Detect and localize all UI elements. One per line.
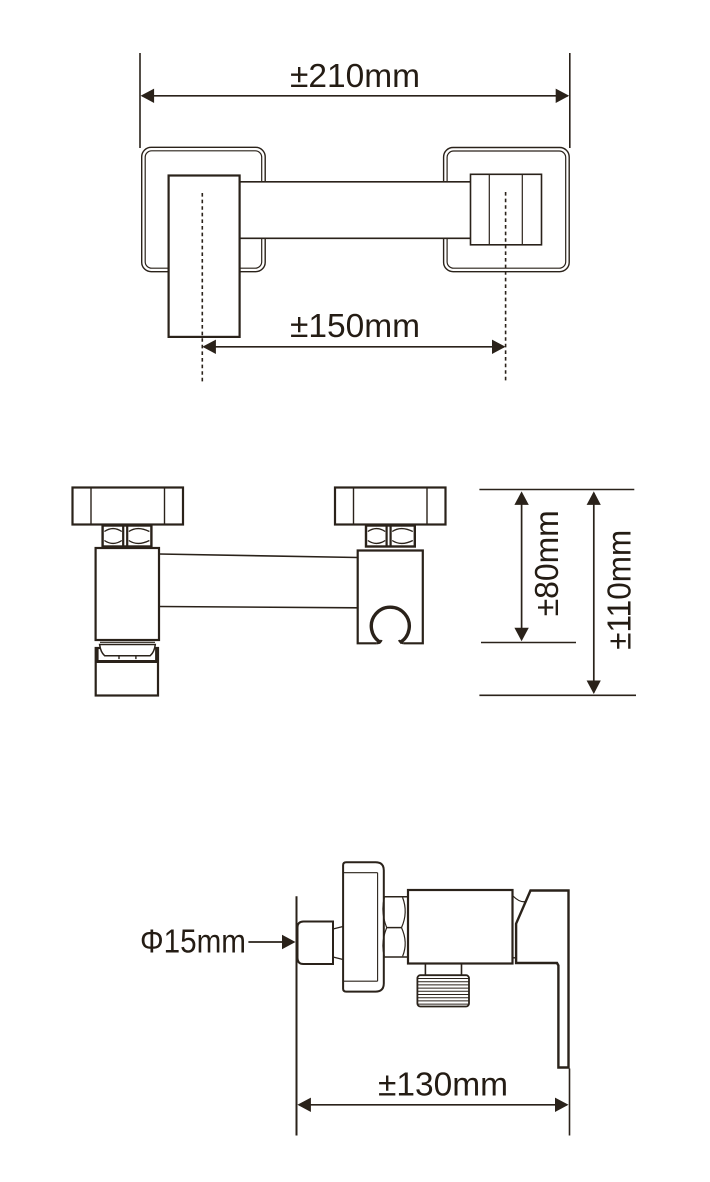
svg-text:±210mm: ±210mm — [290, 58, 420, 95]
svg-text:±150mm: ±150mm — [290, 308, 420, 345]
svg-text:±80mm: ±80mm — [529, 510, 566, 616]
svg-text:±110mm: ±110mm — [601, 530, 638, 650]
svg-text:±130mm: ±130mm — [378, 1067, 508, 1104]
svg-text:Φ15mm: Φ15mm — [140, 924, 246, 961]
